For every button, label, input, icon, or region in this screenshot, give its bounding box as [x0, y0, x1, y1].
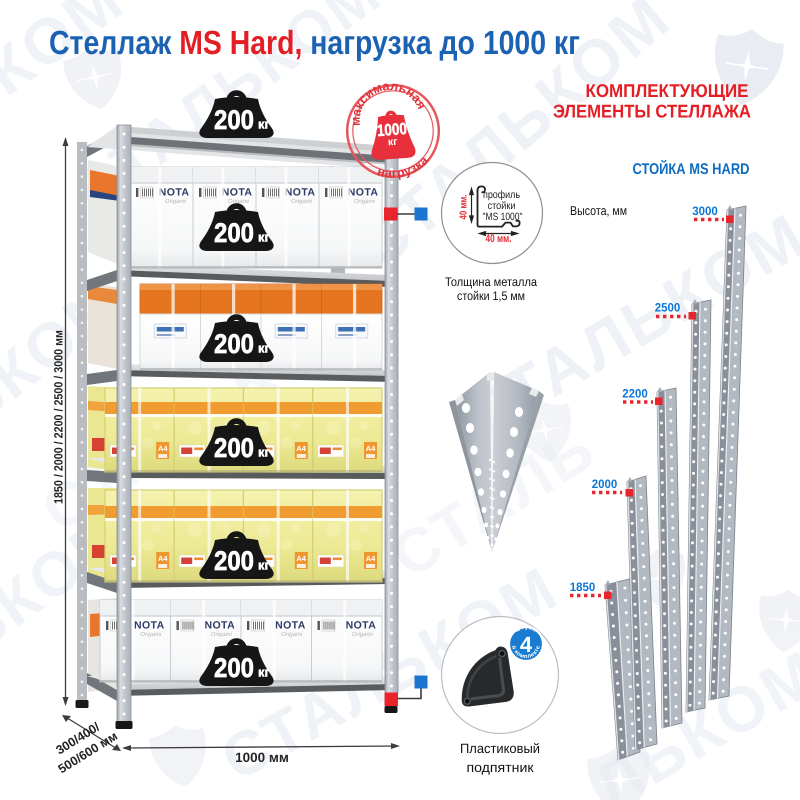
svg-text:Origami: Origami	[165, 198, 187, 205]
svg-text:NOTA: NOTA	[205, 620, 236, 632]
svg-text:Origami: Origami	[281, 631, 303, 638]
svg-text:NOTA: NOTA	[159, 187, 190, 199]
svg-text:Origami: Origami	[211, 631, 233, 638]
svg-text:кг: кг	[258, 445, 271, 460]
svg-text:2000: 2000	[592, 477, 618, 491]
svg-text:подпятник: подпятник	[467, 760, 534, 775]
svg-text:A4: A4	[158, 444, 168, 453]
svg-text:кг: кг	[258, 341, 271, 356]
svg-text:NOTA: NOTA	[348, 187, 379, 199]
svg-text:A4: A4	[366, 554, 376, 563]
svg-text:Толщина металла: Толщина металла	[445, 275, 537, 289]
svg-text:NOTA: NOTA	[346, 620, 377, 632]
svg-text:200: 200	[214, 433, 254, 463]
svg-text:200: 200	[214, 218, 254, 248]
svg-text:кг: кг	[388, 136, 399, 149]
svg-text:1850 / 2000 / 2200 / 2500 / 30: 1850 / 2000 / 2200 / 2500 / 3000 мм	[52, 330, 66, 504]
svg-text:кг: кг	[258, 117, 271, 132]
svg-text:СТОЙКА MS HARD: СТОЙКА MS HARD	[633, 159, 750, 178]
svg-text:КОМПЛЕКТУЮЩИЕ: КОМПЛЕКТУЮЩИЕ	[586, 80, 749, 101]
svg-text:кг: кг	[258, 558, 271, 573]
svg-text:кг: кг	[258, 230, 271, 245]
svg-text:Origami: Origami	[291, 198, 313, 205]
svg-text:200: 200	[214, 329, 254, 359]
svg-text:1850: 1850	[570, 580, 596, 594]
svg-text:A4: A4	[366, 444, 376, 453]
svg-text:40 мм.: 40 мм.	[486, 233, 512, 245]
svg-text:Высота, мм: Высота, мм	[570, 203, 627, 218]
svg-text:2200: 2200	[622, 387, 648, 401]
svg-text:NOTA: NOTA	[285, 187, 316, 199]
svg-text:кг: кг	[258, 665, 271, 680]
svg-text:A4: A4	[296, 554, 306, 563]
svg-text:3000: 3000	[692, 204, 718, 218]
svg-text:200: 200	[214, 653, 254, 683]
svg-text:2500: 2500	[655, 301, 681, 315]
svg-text:200: 200	[214, 546, 254, 576]
svg-text:Пластиковый: Пластиковый	[460, 741, 540, 756]
svg-text:NOTA: NOTA	[134, 620, 165, 632]
svg-text:A4: A4	[296, 444, 306, 453]
svg-text:NOTA: NOTA	[275, 620, 306, 632]
svg-text:Origami: Origami	[354, 198, 376, 205]
svg-text:"MS 1000": "MS 1000"	[483, 211, 523, 223]
svg-text:Origami: Origami	[352, 631, 374, 638]
svg-text:4: 4	[520, 632, 533, 657]
svg-text:NOTA: NOTA	[222, 187, 253, 199]
svg-text:стойки 1,5 мм: стойки 1,5 мм	[457, 289, 525, 303]
svg-text:200: 200	[214, 105, 254, 135]
svg-text:1000 мм: 1000 мм	[235, 750, 289, 765]
svg-text:ЭЛЕМЕНТЫ СТЕЛЛАЖА: ЭЛЕМЕНТЫ СТЕЛЛАЖА	[553, 101, 751, 122]
svg-text:40 мм.: 40 мм.	[459, 194, 470, 219]
svg-text:A4: A4	[158, 554, 168, 563]
svg-text:Стеллаж MS Hard, нагрузка до 1: Стеллаж MS Hard, нагрузка до 1000 кг	[49, 25, 580, 62]
svg-text:Origami: Origami	[140, 631, 162, 638]
